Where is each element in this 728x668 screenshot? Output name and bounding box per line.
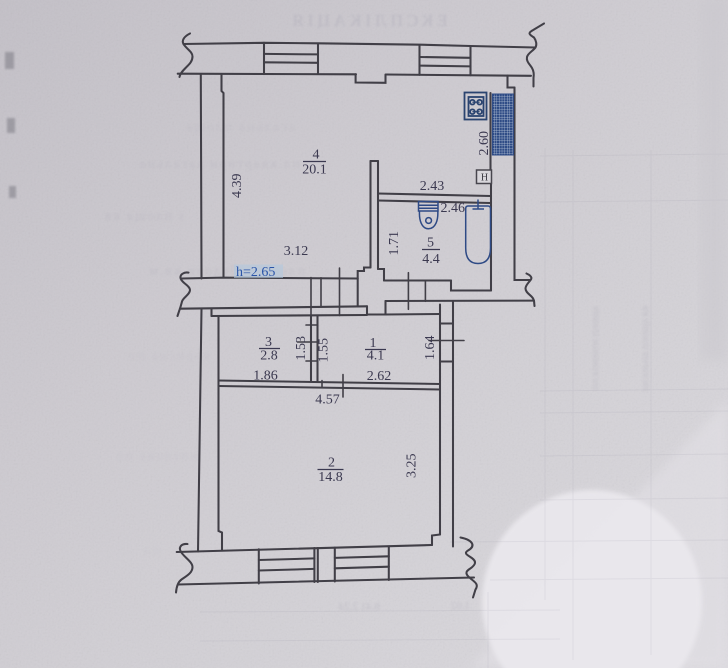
svg-text:3.25: 3.25 xyxy=(405,454,420,479)
svg-text:пл.кімнати площа: пл.кімнати площа xyxy=(589,306,601,390)
svg-text:H: H xyxy=(481,173,488,184)
svg-text:4.57: 4.57 xyxy=(315,393,340,408)
svg-text:3.12: 3.12 xyxy=(284,244,309,259)
svg-text:пл: пл xyxy=(142,543,160,558)
svg-text:5: 5 xyxy=(427,236,434,251)
svg-text:4: 4 xyxy=(313,148,320,163)
svg-text:2.43: 2.43 xyxy=(420,179,445,194)
svg-text:2.46: 2.46 xyxy=(441,201,466,216)
svg-text:20.1: 20.1 xyxy=(302,163,327,178)
svg-text:2.60: 2.60 xyxy=(477,131,492,156)
svg-text:1.86: 1.86 xyxy=(253,369,278,384)
svg-text:пл.квартири загальна: пл.квартири загальна xyxy=(138,156,300,171)
svg-text:корисна пл: корисна пл xyxy=(127,348,210,363)
svg-text:1.53: 1.53 xyxy=(294,336,309,361)
svg-text:2.62: 2.62 xyxy=(367,369,392,384)
svg-text:14.8: 14.8 xyxy=(318,470,343,485)
svg-text:8.41 2.24: 8.41 2.24 xyxy=(338,601,380,613)
svg-text:2: 2 xyxy=(328,456,335,471)
svg-text:з площа кв: з площа кв xyxy=(103,208,185,223)
svg-text:1.02: 1.02 xyxy=(451,600,470,612)
svg-text:2.8: 2.8 xyxy=(260,349,278,364)
svg-text:житлова пл: житлова пл xyxy=(115,448,201,463)
svg-text:1.71: 1.71 xyxy=(387,231,402,256)
svg-text:1.64: 1.64 xyxy=(423,336,438,361)
svg-text:h=2.65: h=2.65 xyxy=(236,265,275,280)
svg-text:загальна площа кв: загальна площа кв xyxy=(639,306,651,392)
svg-text:4.1: 4.1 xyxy=(367,349,385,364)
svg-text:4.4: 4.4 xyxy=(422,252,440,267)
svg-text:4.39: 4.39 xyxy=(230,174,245,199)
svg-text:1.55: 1.55 xyxy=(317,338,332,363)
svg-text:ЕКСПЛІКАЦІЯ: ЕКСПЛІКАЦІЯ xyxy=(289,11,448,30)
